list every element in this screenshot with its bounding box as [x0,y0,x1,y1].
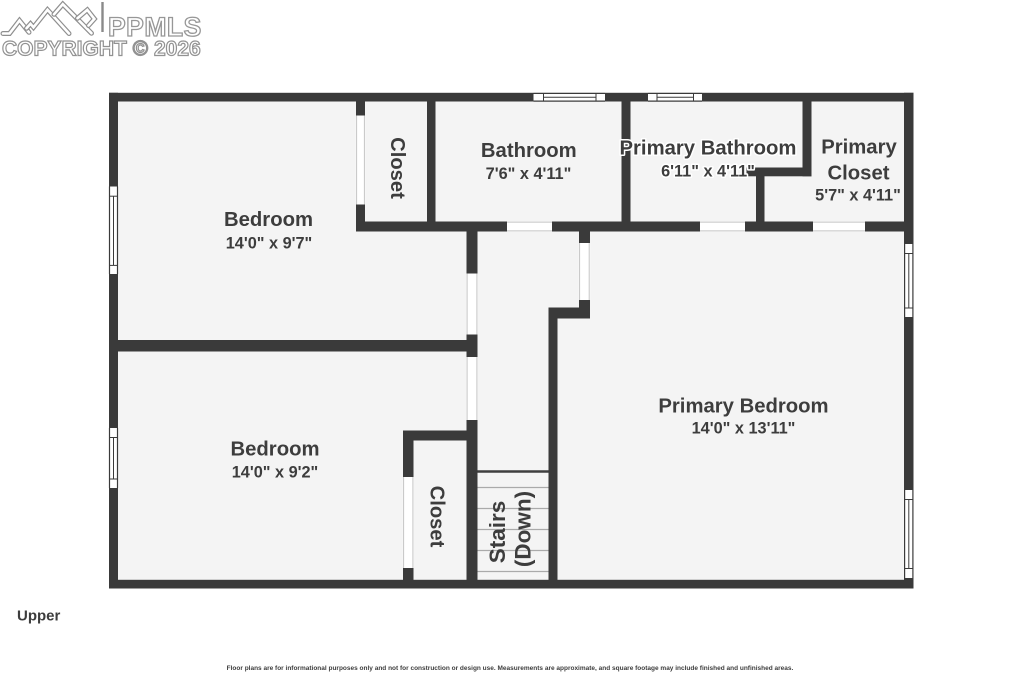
svg-text:7'6" x 4'11": 7'6" x 4'11" [486,165,572,183]
svg-text:Primary Bathroom: Primary Bathroom [620,138,797,160]
svg-text:14'0" x 13'11": 14'0" x 13'11" [692,420,796,438]
svg-text:Closet: Closet [426,486,448,548]
svg-text:Upper: Upper [17,608,61,625]
svg-text:COPYRIGHT © 2026: COPYRIGHT © 2026 [2,38,201,61]
svg-text:Floor plans are for informatio: Floor plans are for informational purpos… [227,665,794,672]
svg-text:Primary Bedroom: Primary Bedroom [658,396,828,418]
svg-text:14'0" x 9'7": 14'0" x 9'7" [226,235,313,253]
svg-text:Bathroom: Bathroom [481,140,577,162]
svg-text:(Down): (Down) [511,491,536,567]
svg-text:Stairs: Stairs [485,501,510,564]
svg-text:Primary: Primary [821,137,897,159]
svg-text:Closet: Closet [386,137,408,199]
svg-text:14'0" x 9'2": 14'0" x 9'2" [232,464,319,482]
svg-text:Bedroom: Bedroom [230,439,319,461]
svg-text:Closet: Closet [828,163,890,185]
svg-text:Bedroom: Bedroom [224,209,313,231]
svg-text:6'11" x 4'11": 6'11" x 4'11" [661,163,755,181]
svg-text:5'7" x 4'11": 5'7" x 4'11" [815,187,901,205]
